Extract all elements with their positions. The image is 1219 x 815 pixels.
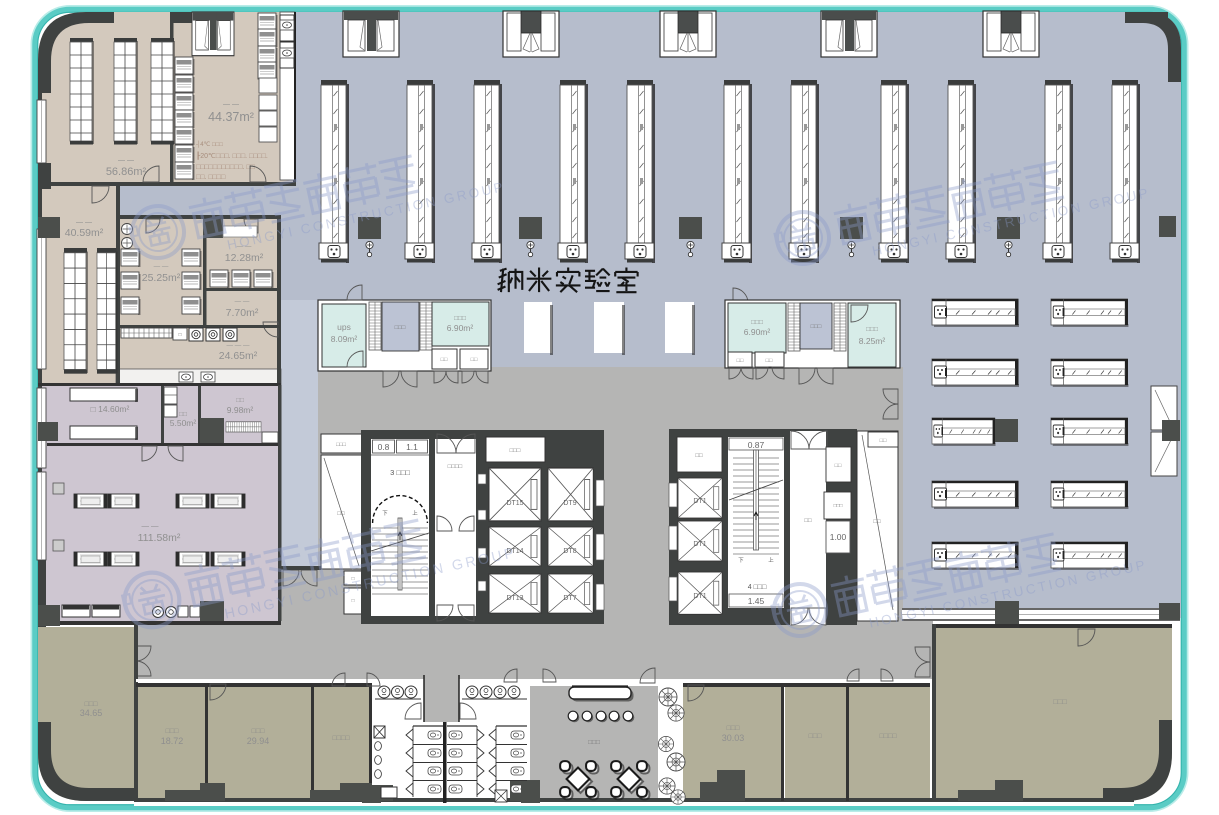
svg-text:— —: — — — [141, 521, 159, 530]
svg-text:— —: — — — [118, 157, 134, 164]
svg-text:上: 上 — [412, 509, 418, 517]
svg-text:□□: □□ — [804, 518, 812, 524]
svg-text:□□: □□ — [471, 357, 478, 363]
svg-text:□ 14.60m²: □ 14.60m² — [91, 404, 130, 414]
svg-text:□□□□: □□□□ — [880, 733, 898, 740]
svg-text:下: 下 — [738, 557, 744, 564]
svg-text:□: □ — [351, 598, 354, 604]
svg-text:□□□: □□□ — [395, 325, 406, 331]
svg-text:□□: □□ — [179, 411, 187, 418]
svg-text:111.58m²: 111.58m² — [138, 532, 181, 544]
svg-text:34.65: 34.65 — [80, 708, 103, 718]
svg-text:1.45: 1.45 — [748, 596, 765, 606]
svg-text:1.1: 1.1 — [406, 442, 418, 452]
svg-text:DT1: DT1 — [693, 593, 706, 600]
svg-text:□□: □□ — [766, 358, 773, 364]
svg-text:44.37m²: 44.37m² — [208, 110, 254, 124]
svg-text:0.87: 0.87 — [748, 440, 765, 450]
svg-text:— —: — — — [154, 263, 169, 270]
svg-text:□□: □□ — [441, 357, 448, 363]
svg-text:— —: — — — [223, 101, 239, 108]
svg-text:29.94: 29.94 — [247, 736, 270, 746]
svg-text:6.90m²: 6.90m² — [744, 327, 771, 337]
svg-text:□□: □□ — [236, 397, 244, 404]
svg-text:□□□: □□□ — [866, 326, 878, 333]
svg-text:□□□: □□□ — [751, 319, 763, 326]
svg-text:25.25m²: 25.25m² — [142, 272, 181, 284]
svg-text:□□□□: □□□□ — [448, 464, 463, 470]
svg-text:□□: □□ — [835, 463, 842, 469]
svg-text:□□□: □□□ — [811, 324, 822, 330]
svg-text:24.65m²: 24.65m² — [219, 350, 258, 362]
svg-text:□□: □□ — [737, 358, 744, 364]
svg-text:□□□: □□□ — [252, 728, 265, 735]
svg-text:4 □□□: 4 □□□ — [748, 584, 767, 591]
svg-text:DT7: DT7 — [563, 595, 576, 602]
svg-text:┠20℃□□□. □□□. □□□□.: ┠20℃□□□. □□□. □□□□. — [196, 151, 268, 160]
svg-text:□□□: □□□ — [510, 448, 521, 454]
svg-text:□□□: □□□ — [588, 739, 600, 746]
svg-text:0.8: 0.8 — [378, 442, 390, 452]
svg-text:□□□: □□□ — [833, 503, 842, 509]
svg-text:40.59m²: 40.59m² — [65, 227, 104, 239]
svg-text:5.50m²: 5.50m² — [170, 418, 197, 428]
svg-text:56.86m²: 56.86m² — [106, 166, 147, 178]
svg-text:DT1: DT1 — [693, 541, 706, 548]
svg-text:18.72: 18.72 — [161, 736, 184, 746]
svg-text:DT1: DT1 — [693, 498, 706, 505]
svg-text:□□□: □□□ — [809, 733, 822, 740]
svg-text:上: 上 — [768, 556, 774, 564]
svg-text:□□: □□ — [695, 453, 703, 459]
svg-text:8.25m²: 8.25m² — [859, 336, 886, 346]
svg-text:□□: □□ — [880, 438, 887, 444]
svg-text:7.70m²: 7.70m² — [226, 307, 259, 319]
svg-text:DT9: DT9 — [563, 500, 576, 507]
svg-text:3 □□□: 3 □□□ — [390, 468, 410, 477]
svg-text:DT15: DT15 — [506, 500, 523, 507]
svg-text:9.98m²: 9.98m² — [227, 405, 254, 415]
svg-text:□□□: □□□ — [1053, 697, 1067, 706]
svg-text:□□□□□□□□□□□. □□: □□□□□□□□□□□. □□ — [196, 164, 256, 171]
svg-text:ups: ups — [337, 322, 351, 332]
svg-text:30.03: 30.03 — [722, 733, 745, 743]
svg-text:□□□: □□□ — [85, 701, 98, 708]
svg-text:下: 下 — [382, 510, 388, 517]
svg-text:□: □ — [178, 332, 181, 338]
svg-text:1.00: 1.00 — [830, 532, 847, 542]
svg-text:□□: □□ — [873, 519, 881, 525]
svg-text:— —: — — — [76, 219, 92, 226]
svg-text:□□□: □□□ — [166, 728, 179, 735]
svg-text:□□□: □□□ — [727, 725, 740, 732]
svg-text:□□. □□□□: □□. □□□□ — [196, 174, 226, 181]
svg-text:□□: □□ — [337, 511, 345, 517]
svg-text:□□□□: □□□□ — [333, 735, 351, 742]
svg-text:— — —: — — — — [226, 342, 250, 349]
svg-text:□□□: □□□ — [336, 442, 347, 448]
svg-text:DT8: DT8 — [563, 548, 576, 555]
svg-text:□□□: □□□ — [454, 315, 466, 322]
svg-text:6.90m²: 6.90m² — [447, 323, 474, 333]
svg-text:8.09m²: 8.09m² — [331, 334, 358, 344]
svg-text:12.28m²: 12.28m² — [225, 252, 264, 264]
svg-text:┤4℃ □□□: ┤4℃ □□□ — [196, 140, 223, 148]
svg-text:DT13: DT13 — [506, 595, 523, 602]
svg-text:— —: — — — [235, 298, 250, 305]
